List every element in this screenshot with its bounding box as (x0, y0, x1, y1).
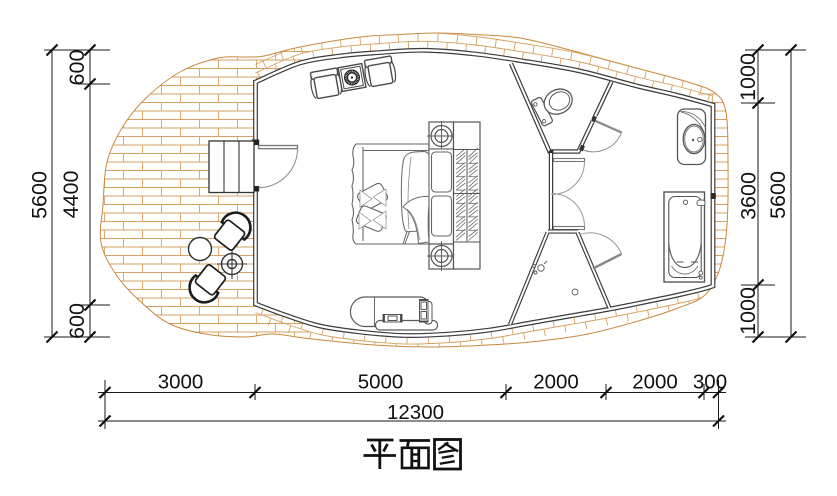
svg-text:2000: 2000 (533, 371, 579, 394)
svg-text:600: 600 (65, 50, 89, 86)
svg-text:1000: 1000 (736, 287, 760, 335)
svg-text:5600: 5600 (766, 171, 790, 219)
svg-text:1000: 1000 (736, 53, 760, 101)
svg-text:600: 600 (65, 303, 89, 339)
svg-text:2000: 2000 (632, 371, 678, 394)
svg-text:3600: 3600 (737, 172, 761, 220)
svg-text:300: 300 (693, 371, 727, 394)
svg-text:3000: 3000 (158, 371, 204, 394)
svg-text:4400: 4400 (59, 171, 83, 219)
svg-text:5000: 5000 (358, 371, 404, 394)
svg-text:5600: 5600 (28, 171, 52, 219)
svg-text:12300: 12300 (387, 401, 444, 424)
